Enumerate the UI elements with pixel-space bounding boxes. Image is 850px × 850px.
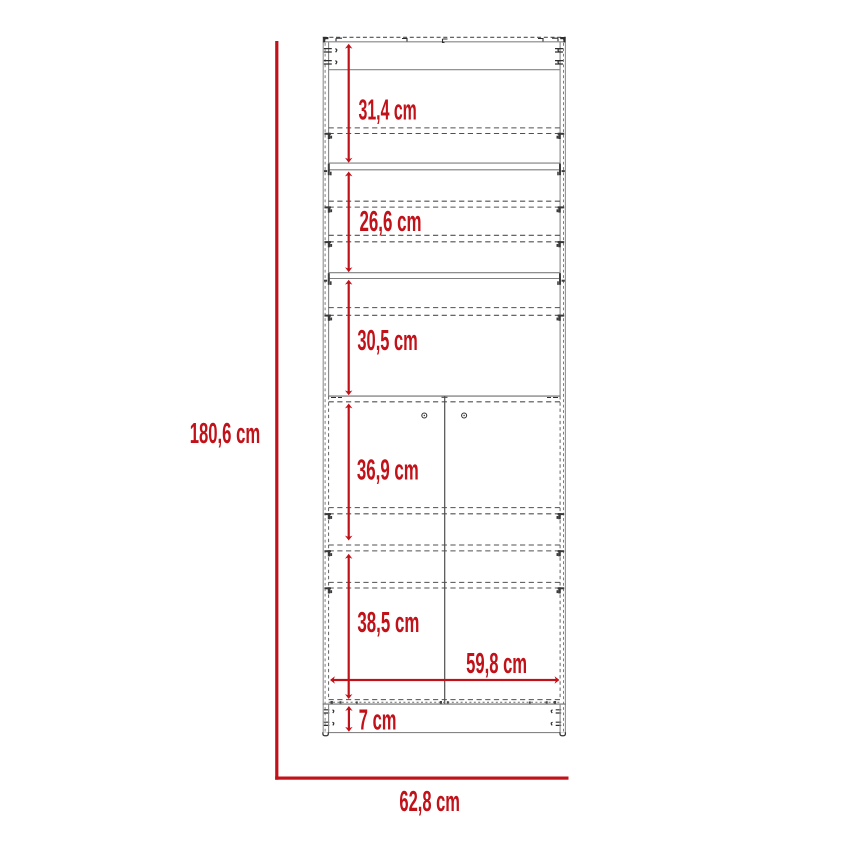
svg-text:26,6 cm: 26,6 cm [360,206,422,238]
svg-text:62,8 cm: 62,8 cm [399,786,460,818]
svg-text:30,5 cm: 30,5 cm [357,325,417,357]
svg-text:59,8 cm: 59,8 cm [466,648,527,680]
svg-text:38,5 cm: 38,5 cm [357,607,419,639]
svg-text:180,6 cm: 180,6 cm [190,418,261,450]
svg-text:7 cm: 7 cm [359,704,397,736]
svg-text:36,9 cm: 36,9 cm [357,455,419,487]
svg-text:31,4 cm: 31,4 cm [359,94,417,126]
